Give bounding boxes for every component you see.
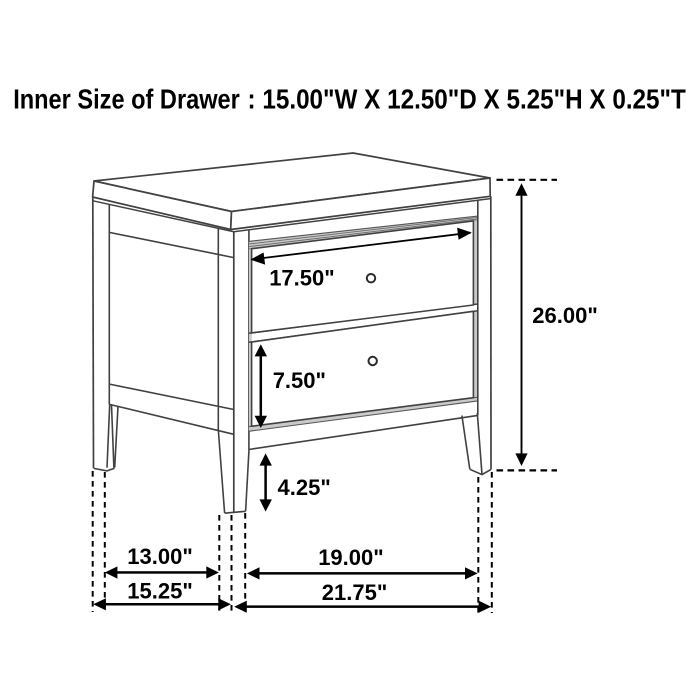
svg-text:17.50": 17.50" (269, 266, 334, 291)
svg-text:13.00": 13.00" (127, 544, 192, 569)
svg-text:: 15.00"W X 12.50"D X 5.25"H X: : 15.00"W X 12.50"D X 5.25"H X 0.25"T (241, 85, 686, 115)
svg-text:7.50": 7.50" (273, 368, 326, 393)
svg-text:19.00": 19.00" (318, 545, 383, 570)
svg-text:4.25": 4.25" (278, 475, 331, 500)
svg-text:21.75": 21.75" (322, 580, 387, 605)
svg-text:15.25": 15.25" (127, 578, 192, 603)
svg-text:26.00": 26.00" (532, 303, 597, 328)
svg-text:Inner Size of Drawer: Inner Size of Drawer (13, 85, 240, 115)
